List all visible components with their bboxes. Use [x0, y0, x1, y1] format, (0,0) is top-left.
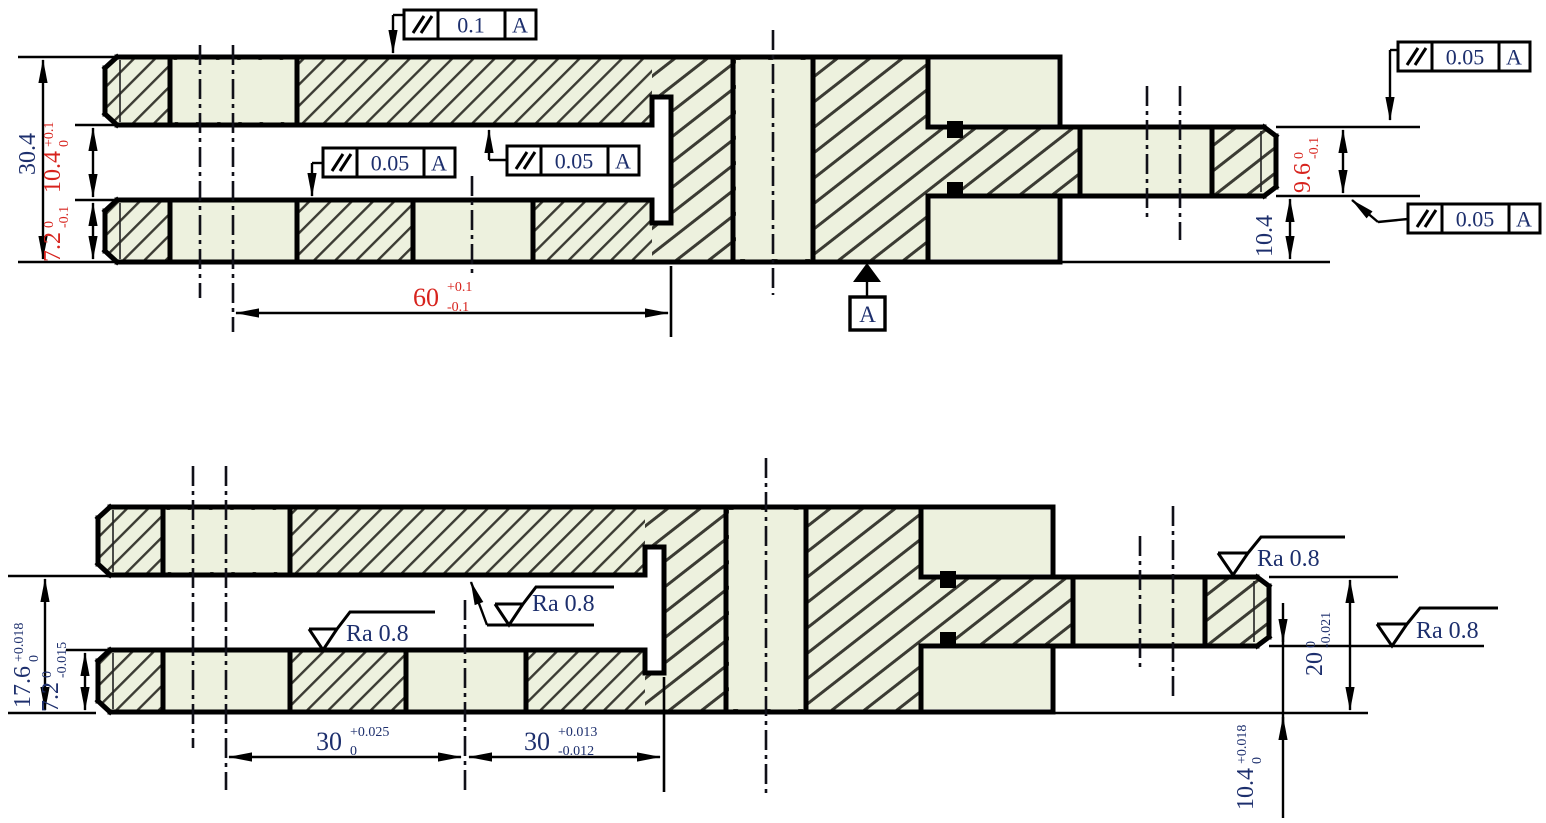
fcf-datum: A [1506, 45, 1522, 70]
dim-arm-offset-lower-tol: 0 [1250, 757, 1265, 764]
dim-slot-length-value: 60 [413, 283, 439, 312]
fcf-tolerance: 0.05 [555, 149, 594, 174]
fcf-tolerance: 0.05 [1446, 45, 1485, 70]
dim-rail-height-bottom-upper-tol: 0 [40, 671, 55, 678]
dim-arm-offset-upper-tol: +0.018 [1235, 725, 1250, 764]
dim-left-span-upper-tol: +0.025 [350, 725, 389, 740]
dim-opening-height-value: 17.6 [10, 666, 36, 708]
datum-label: A [859, 302, 876, 327]
dim-slot-height-value: 10.4 [40, 151, 66, 193]
fcf-datum: A [512, 13, 528, 38]
dim-arm-height-upper-tol: 0 [1292, 152, 1307, 159]
fcf-datum: A [615, 149, 631, 174]
ra-arm-bottom-label: Ra 0.8 [1416, 618, 1479, 644]
ra-rail-top-label: Ra 0.8 [346, 621, 409, 647]
fcf-datum: A [1516, 207, 1532, 232]
dim-rail-height-lower-tol: -0.1 [57, 206, 72, 228]
drawing-sheet: 30.4 10.4 +0.1 0 7.2 0 -0.1 60 +0.1 [0, 0, 1546, 823]
dim-opening-height-lower-tol: 0 [27, 655, 42, 662]
dim-step-height-upper-tol: 0 [1304, 641, 1319, 648]
ra-arm-top-label: Ra 0.8 [1257, 546, 1320, 572]
dim-rail-height-value: 7.2 [40, 232, 66, 262]
dim-left-span-value: 30 [316, 727, 342, 756]
dim-rail-height-bottom-value: 7.2 [38, 682, 64, 712]
dim-opening-height-upper-tol: +0.018 [12, 623, 27, 662]
dim-overall-height-value: 30.4 [15, 133, 41, 175]
dim-arm-offset-value: 10.4 [1233, 768, 1259, 810]
dim-slot-height-lower-tol: 0 [57, 140, 72, 147]
dim-right-span-upper-tol: +0.013 [558, 725, 597, 740]
drawing-canvas: 30.4 10.4 +0.1 0 7.2 0 -0.1 60 +0.1 [0, 0, 1546, 823]
dim-slot-height-upper-tol: +0.1 [42, 122, 57, 147]
ra-slot-ceiling-label: Ra 0.8 [532, 591, 595, 617]
dim-arm-height-lower-tol: -0.1 [1307, 137, 1322, 159]
dim-right-span-value: 30 [524, 727, 550, 756]
dim-slot-length-lower-tol: -0.1 [447, 300, 469, 315]
dim-right-span-lower-tol: -0.012 [558, 744, 594, 759]
dim-slot-length-upper-tol: +0.1 [447, 280, 472, 295]
fcf-tolerance: 0.1 [457, 13, 485, 38]
fcf-tolerance: 0.05 [371, 151, 410, 176]
dim-rail-height-upper-tol: 0 [42, 221, 57, 228]
dim-arm-height-value: 9.6 [1290, 163, 1316, 193]
fcf-tolerance: 0.05 [1456, 207, 1495, 232]
dim-base-height-value: 10.4 [1252, 215, 1278, 257]
dim-left-span-lower-tol: 0 [350, 744, 357, 759]
dim-rail-height-bottom-lower-tol: -0.015 [55, 642, 70, 678]
dim-step-height-value: 20 [1302, 652, 1328, 676]
fcf-datum: A [431, 151, 447, 176]
dim-step-height-lower-tol: -0.021 [1319, 612, 1334, 648]
